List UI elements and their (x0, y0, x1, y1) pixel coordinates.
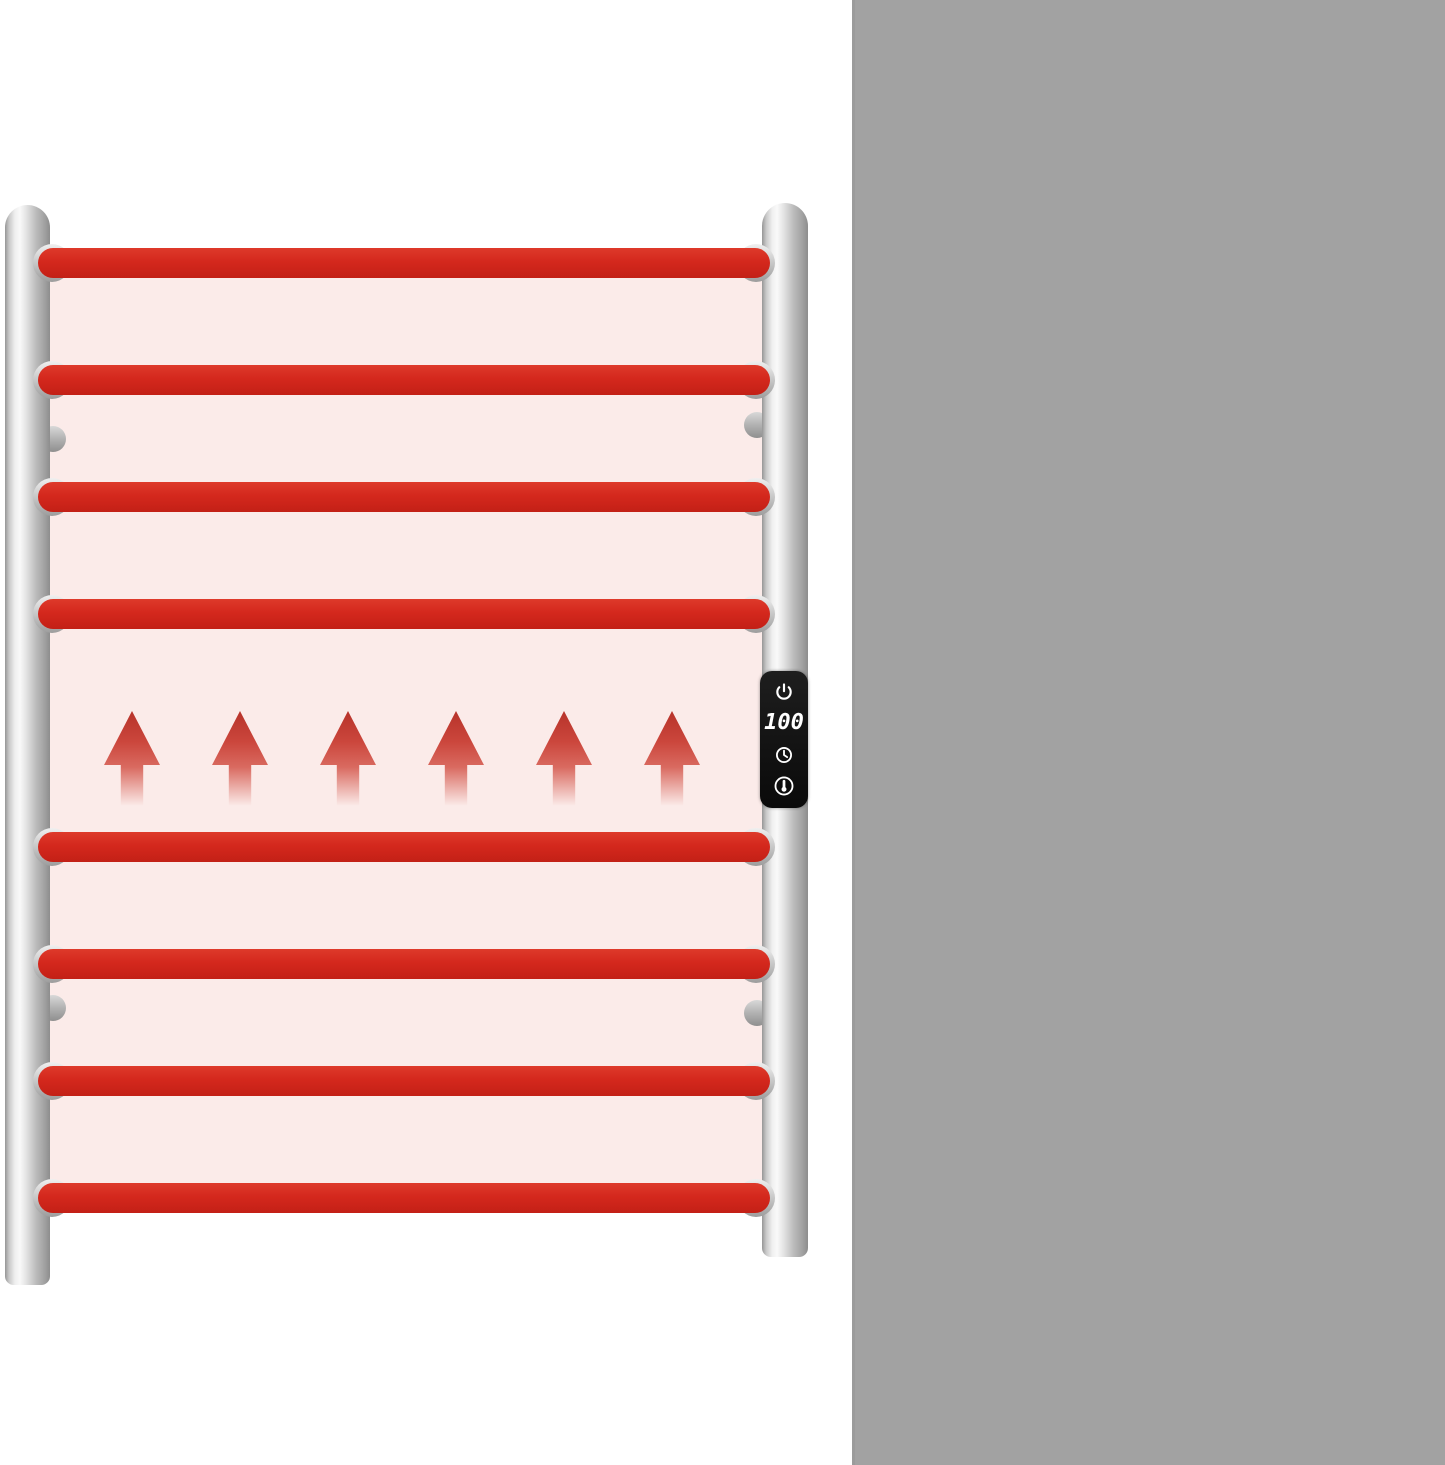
temperature-icon (773, 775, 795, 797)
heating-rung (38, 248, 770, 278)
heating-rung (38, 1183, 770, 1213)
power-icon (774, 682, 794, 702)
control-panel: 100 (760, 671, 808, 808)
heating-rung (38, 599, 770, 629)
temperature-display: 100 (764, 712, 804, 734)
towel-warmer-illustration: 100 (0, 0, 852, 1465)
timer-icon (774, 745, 794, 765)
product-infographic: 100 5 min (0, 0, 1445, 1465)
heating-rung (38, 482, 770, 512)
heating-rung (38, 949, 770, 979)
features-panel: 5 min ( 104 ℉ ) 105 Watts Heatin (852, 0, 1445, 1465)
heating-rung (38, 832, 770, 862)
heating-rung (38, 365, 770, 395)
heating-rung (38, 1066, 770, 1096)
